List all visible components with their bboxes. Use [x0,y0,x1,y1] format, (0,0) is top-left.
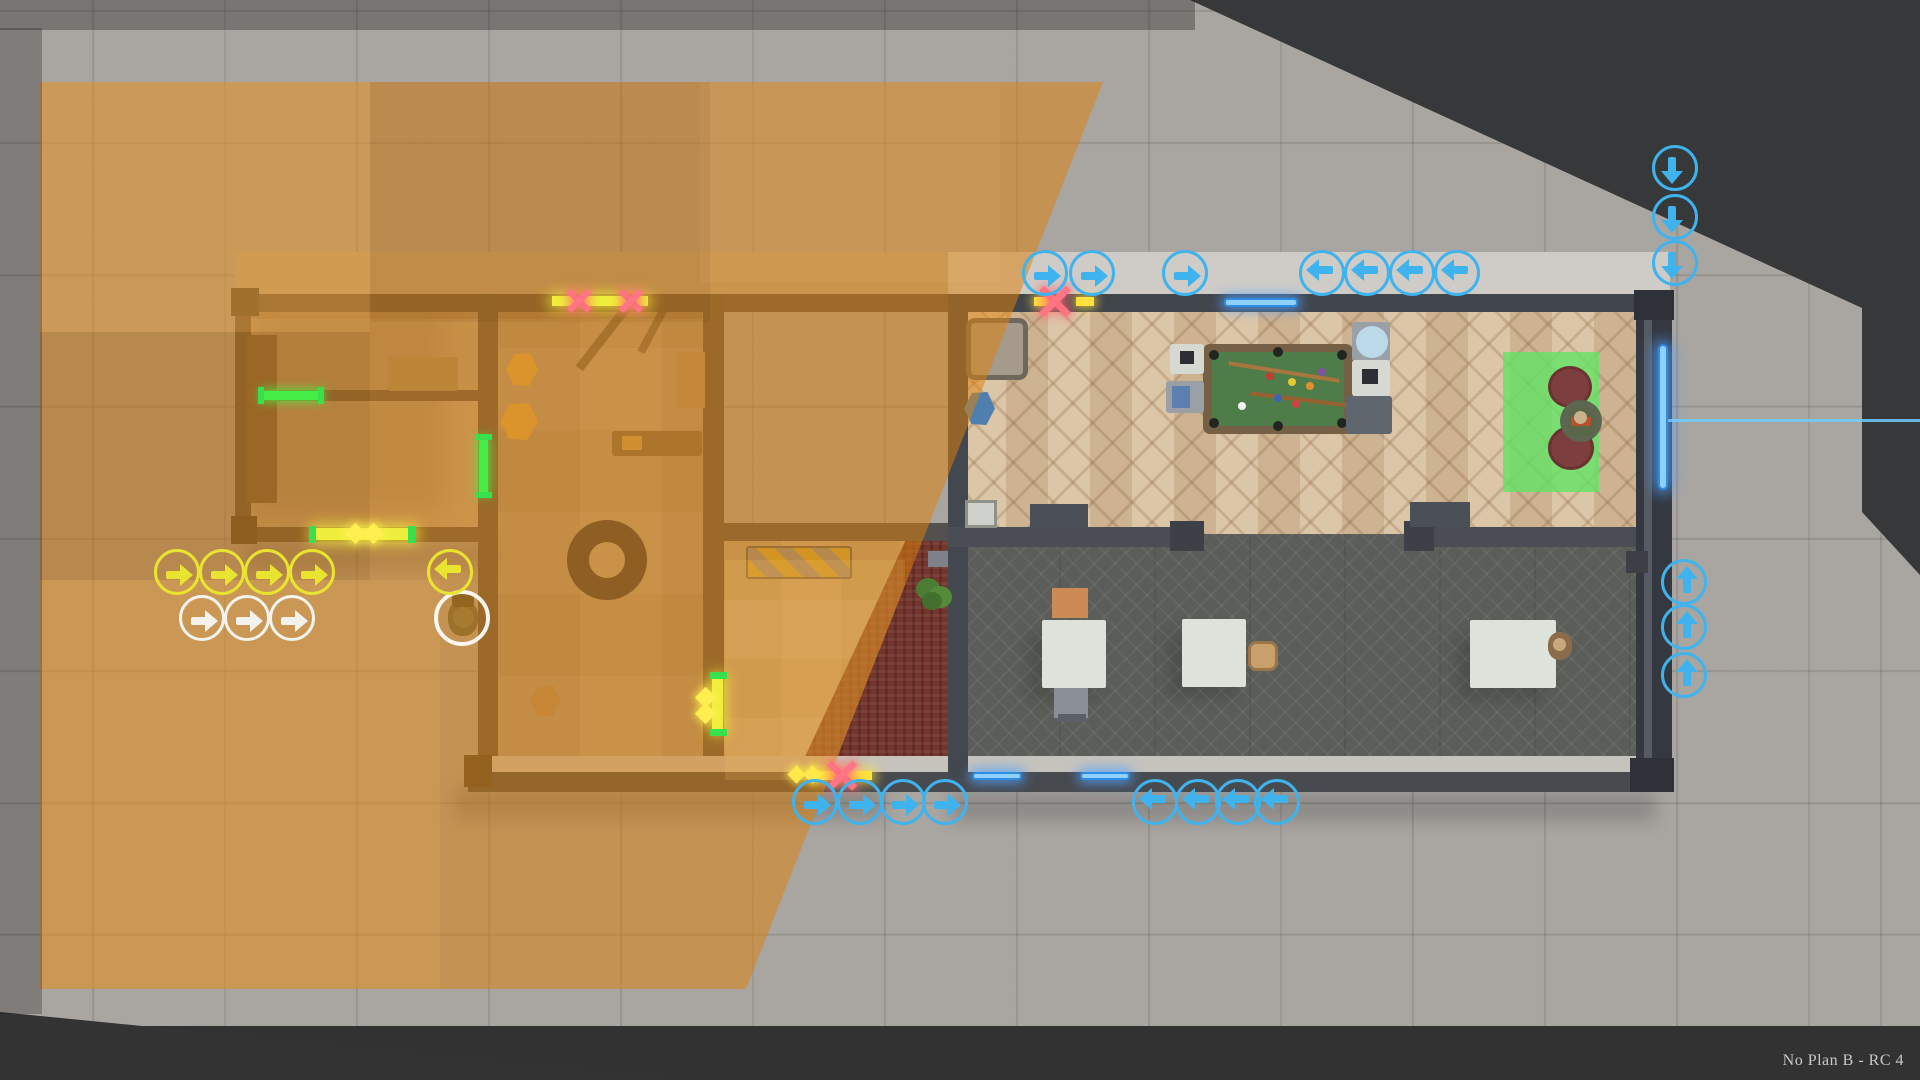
path-arrow-yellow-right-4-head [315,564,328,586]
path-arrow-white-right-1[interactable] [179,595,225,641]
path-arrow-blue-down-1[interactable] [1652,145,1698,191]
pool-ball-red [1266,372,1274,380]
counter-white [965,500,997,528]
path-arrow-blue-up-3[interactable] [1661,652,1707,698]
chair-gray-back [1058,714,1086,722]
path-arrow-blue-top-left-1-head [1306,259,1319,281]
suspect-head [1574,411,1587,424]
path-arrow-blue-bottom-left-1-head [1139,788,1152,810]
path-arrow-blue-bottom-left-2-shaft [1193,795,1209,803]
path-arrow-blue-bottom-left-3-shaft [1233,795,1249,803]
path-arrow-blue-top-left-4-head [1441,259,1454,281]
pool-ball-purple [1318,368,1326,376]
path-arrow-yellow-left-1-head [434,558,447,580]
path-arrow-blue-down-2-head [1661,220,1683,233]
path-arrow-blue-top-right-2-head [1095,265,1108,287]
path-arrow-yellow-right-2-head [225,564,238,586]
orange-patch-2 [40,580,440,989]
door-bottom-blue-1[interactable] [972,772,1022,780]
pool-ball-orange [1306,382,1314,390]
wall-box-right [1626,551,1648,573]
seat-box-white-1-pad [1180,351,1194,364]
chair-tan [1248,641,1278,671]
wall-mid-divider-2 [1408,527,1638,547]
pool-pocket-1 [1209,350,1219,360]
path-arrow-blue-down-3[interactable] [1652,240,1698,286]
path-arrow-blue-top-left-3[interactable] [1389,250,1435,296]
path-arrow-blue-bottom-right-3-head [906,794,919,816]
path-arrow-blue-down-2[interactable] [1652,194,1698,240]
path-arrow-blue-bottom-left-2-head [1182,788,1195,810]
path-arrow-yellow-right-1-head [180,564,193,586]
path-arrow-white-right-2[interactable] [224,595,270,641]
path-arrow-blue-bottom-right-4[interactable] [922,779,968,825]
door-green-v-cap-top [475,434,492,440]
path-arrow-blue-top-left-4-shaft [1452,266,1468,274]
orange-patch-5 [700,82,1000,282]
door-yellow-v-bar[interactable] [712,676,723,732]
path-arrow-blue-bottom-right-1[interactable] [792,779,838,825]
path-arrow-blue-up-1-shaft [1683,577,1691,593]
path-arrow-blue-top-right-3-head [1188,265,1201,287]
door-top-blue-bar[interactable] [1224,298,1298,307]
civilian-head [1553,638,1566,651]
door-right-blue-vertical[interactable] [1658,344,1668,490]
path-arrow-blue-bottom-right-4-head [948,794,961,816]
aim-line [1668,419,1920,422]
path-arrow-white-right-3[interactable] [269,595,315,641]
path-arrow-blue-top-left-1[interactable] [1299,250,1345,296]
path-arrow-blue-up-2[interactable] [1661,604,1707,650]
pool-pocket-5 [1273,421,1283,431]
door-green-h-bar[interactable] [262,391,322,400]
door-yellow-v-cap-bottom [710,729,727,736]
path-arrow-blue-bottom-right-2-head [863,794,876,816]
shade-top-edge [0,0,1195,30]
path-arrow-blue-top-left-2-head [1351,259,1364,281]
path-arrow-yellow-right-3[interactable] [244,549,290,595]
path-arrow-blue-up-2-shaft [1683,622,1691,638]
path-arrow-blue-bottom-left-4-shaft [1272,795,1288,803]
seat-box-white-2-pad [1362,369,1378,384]
path-arrow-blue-top-right-3[interactable] [1162,250,1208,296]
path-arrow-white-right-2-head [250,610,263,632]
plant-leaf-3 [922,592,942,610]
shade-left-edge [0,28,42,1014]
path-arrow-blue-top-left-3-shaft [1407,266,1423,274]
path-arrow-blue-down-3-head [1661,266,1683,279]
path-arrow-yellow-right-1[interactable] [154,549,200,595]
path-arrow-blue-top-left-2-shaft [1362,266,1378,274]
pool-ball-blue [1274,394,1282,402]
path-arrow-yellow-right-4[interactable] [289,549,335,595]
orange-patch-4 [40,332,370,580]
sideboard-2 [1410,502,1470,527]
orange-patch-1 [40,82,370,332]
pool-pocket-4 [1209,418,1219,428]
pool-ball-red-2 [1292,400,1300,408]
version-label: No Plan B - RC 4 [1783,1052,1904,1070]
post-bottom-right-corner [1630,758,1674,792]
path-arrow-blue-bottom-right-2[interactable] [837,779,883,825]
swat-selection-ring[interactable] [434,590,490,646]
path-arrow-yellow-left-1[interactable] [427,549,473,595]
path-arrow-blue-top-left-1-shaft [1317,266,1333,274]
pool-ball-yellow [1288,378,1296,386]
door-green-v-bar[interactable] [479,438,488,494]
path-arrow-blue-bottom-left-3-head [1222,788,1235,810]
pool-pocket-2 [1273,347,1283,357]
post-top-right-corner [1634,290,1674,320]
path-arrow-blue-bottom-left-4[interactable] [1254,779,1300,825]
path-arrow-blue-top-right-1-head [1048,265,1061,287]
pool-ball-white [1238,402,1246,410]
table-1 [1042,620,1106,688]
path-arrow-blue-top-left-3-head [1396,259,1409,281]
door-green-h-cap-left [258,387,264,404]
pool-pocket-3 [1337,350,1347,360]
path-arrow-blue-up-3-shaft [1683,670,1691,686]
door-yellow-h-cap-right [408,526,415,543]
sideboard-1 [1030,504,1088,528]
path-arrow-blue-bottom-left-4-head [1261,788,1274,810]
seat-box-gray-pad [1172,386,1190,408]
pillar-mid-divider-1 [1170,521,1204,551]
door-yellow-v-cap-top [710,672,727,679]
wall-right-inner-lip [1644,310,1652,776]
path-arrow-blue-down-1-head [1661,171,1683,184]
path-arrow-blue-up-2-head [1676,611,1698,624]
path-arrow-blue-bottom-left-1-shaft [1150,795,1166,803]
shadow-right-building-south [950,792,1656,822]
game-viewport[interactable] [0,0,1920,1080]
path-arrow-yellow-left-1-shaft [445,565,461,573]
path-arrow-blue-top-left-4[interactable] [1434,250,1480,296]
path-arrow-white-right-1-head [205,610,218,632]
wall-mid-divider-1 [948,527,1204,547]
path-arrow-yellow-right-2[interactable] [199,549,245,595]
path-arrow-yellow-right-3-head [270,564,283,586]
table-2 [1182,619,1246,687]
table-3 [1470,620,1556,688]
water-cooler-bottle [1356,326,1388,358]
path-arrow-blue-bottom-left-1[interactable] [1132,779,1178,825]
path-arrow-white-right-3-head [295,610,308,632]
door-lounge-stub-right [1076,297,1094,306]
path-arrow-blue-top-right-1[interactable] [1022,250,1068,296]
path-arrow-blue-bottom-right-1-head [818,794,831,816]
red-room-box [928,551,948,567]
path-arrow-blue-top-left-2[interactable] [1344,250,1390,296]
cabinet-dark [1346,396,1392,434]
path-arrow-blue-up-1[interactable] [1661,559,1707,605]
door-yellow-h-cap-left [309,526,316,543]
chair-orange [1052,588,1088,618]
orange-patch-3 [370,82,710,322]
path-arrow-blue-top-right-2[interactable] [1069,250,1115,296]
door-green-v-cap-bottom [475,492,492,498]
path-arrow-blue-up-1-head [1676,566,1698,579]
door-green-h-cap-right [318,387,324,404]
door-bottom-blue-2[interactable] [1080,772,1130,780]
path-arrow-blue-bottom-right-3[interactable] [880,779,926,825]
path-arrow-blue-up-3-head [1676,659,1698,672]
